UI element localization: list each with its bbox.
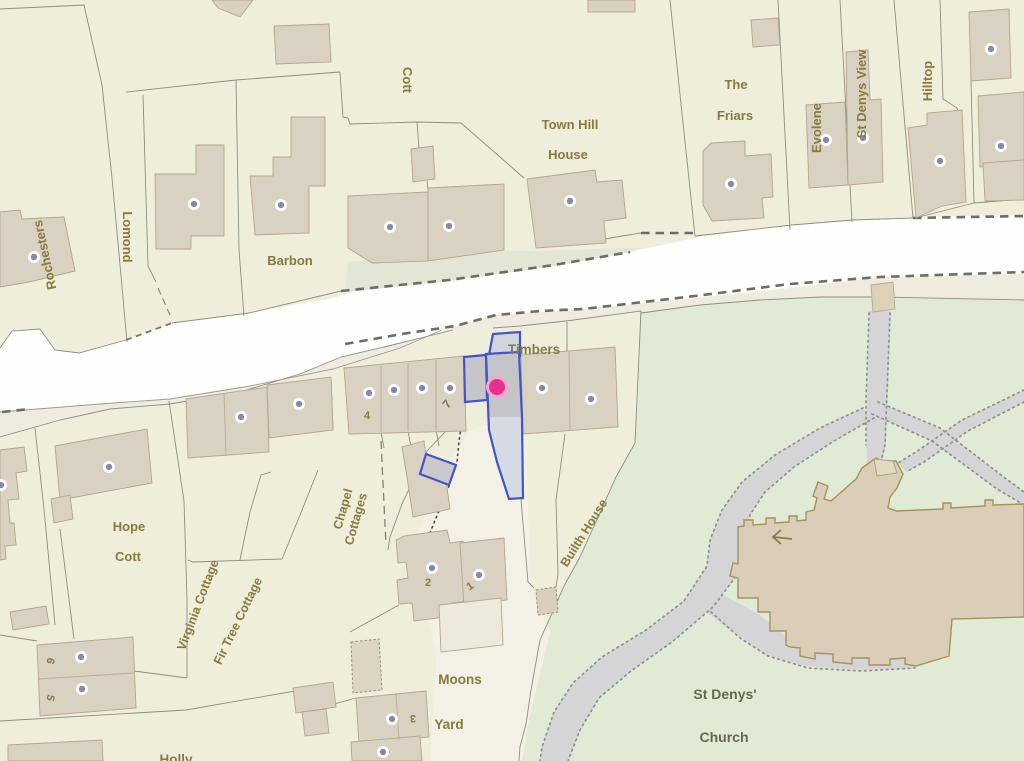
svg-text:Town Hill: Town Hill [542, 117, 599, 132]
svg-text:2: 2 [425, 577, 431, 589]
svg-text:Moons: Moons [438, 672, 482, 687]
svg-text:St Denys View: St Denys View [854, 49, 869, 139]
svg-text:Barbon: Barbon [267, 253, 313, 268]
svg-text:Timbers: Timbers [508, 342, 560, 357]
svg-text:St Denys': St Denys' [693, 686, 756, 702]
svg-text:4: 4 [364, 410, 371, 422]
svg-text:The: The [724, 77, 747, 92]
svg-text:Yard: Yard [434, 717, 463, 732]
svg-text:3: 3 [410, 712, 416, 724]
svg-text:Cott: Cott [115, 549, 142, 564]
svg-text:Evolene: Evolene [809, 103, 824, 153]
svg-text:Church: Church [700, 729, 749, 745]
svg-text:House: House [548, 147, 588, 162]
svg-text:Hilltop: Hilltop [920, 61, 935, 101]
svg-text:Friars: Friars [717, 108, 753, 123]
svg-text:Cott: Cott [400, 67, 415, 94]
svg-text:Hope: Hope [113, 519, 146, 534]
svg-text:Holly: Holly [159, 752, 192, 761]
svg-text:Lomond: Lomond [120, 211, 135, 262]
